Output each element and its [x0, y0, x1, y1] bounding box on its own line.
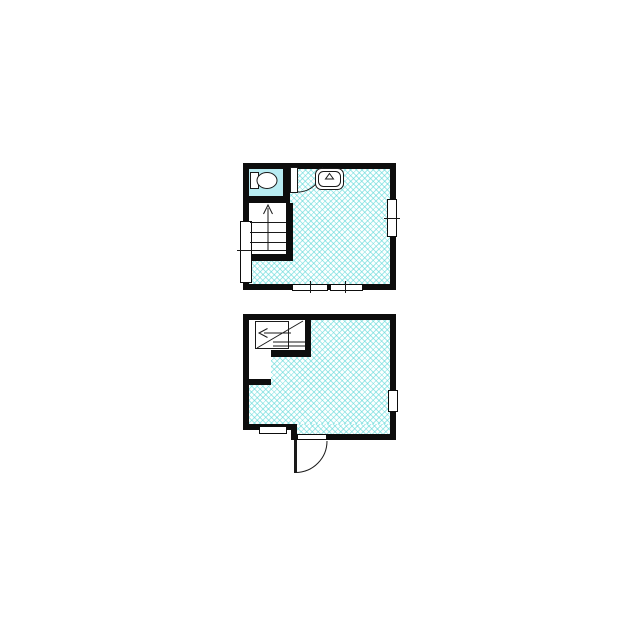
lower-wall-top [243, 314, 396, 320]
lower-wall-bottom-right [327, 434, 396, 440]
lower-bottom-left-window [259, 426, 287, 434]
lower-wall-right [390, 314, 396, 440]
lower-wall-left [243, 314, 249, 430]
lower-closet-stub-wall [243, 379, 271, 385]
lower-understair-closet [249, 320, 271, 380]
lower-main-room-floor-strip [297, 424, 390, 434]
lower-floor-plan [0, 0, 640, 640]
lower-stair-south-wall [271, 350, 311, 357]
lower-right-wall-window [388, 390, 398, 412]
floor-plan-canvas [0, 0, 640, 640]
lower-door-threshold [297, 434, 327, 440]
